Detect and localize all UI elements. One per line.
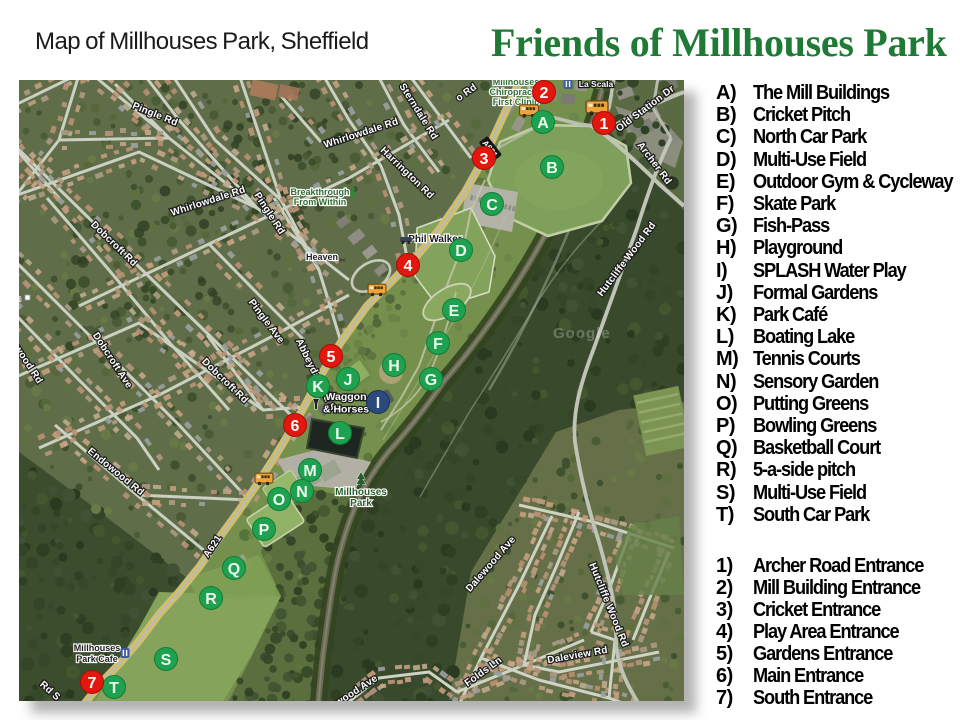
svg-text:R: R	[205, 591, 217, 608]
svg-text:wood Rd: wood Rd	[19, 343, 45, 386]
svg-text:Park Cafe: Park Cafe	[76, 654, 118, 664]
svg-text:Folds Ln: Folds Ln	[463, 655, 504, 689]
svg-text:M: M	[303, 463, 316, 480]
svg-text:I: I	[376, 395, 380, 412]
svg-text:C: C	[486, 197, 498, 214]
svg-text:La Scala: La Scala	[579, 80, 614, 89]
svg-text:Millhouses: Millhouses	[335, 487, 387, 498]
svg-text:Hutcliffe Wood Rd: Hutcliffe Wood Rd	[596, 220, 659, 298]
svg-text:Dalewood Ave: Dalewood Ave	[464, 534, 518, 594]
svg-text:F: F	[433, 336, 443, 353]
svg-text:Millhouses: Millhouses	[493, 80, 540, 87]
svg-text:G: G	[425, 372, 437, 389]
svg-text:Dobcroft Rd: Dobcroft Rd	[199, 356, 250, 406]
svg-text:Google: Google	[553, 325, 611, 342]
svg-text:4: 4	[404, 258, 413, 275]
svg-text:o Rd: o Rd	[454, 82, 479, 104]
svg-text:A: A	[537, 115, 549, 132]
svg-text:7: 7	[88, 675, 97, 692]
svg-text:Breakthrough: Breakthrough	[290, 187, 349, 197]
svg-text:O: O	[273, 492, 285, 509]
svg-text:Heaven: Heaven	[306, 252, 338, 262]
svg-text:Daleview Rd: Daleview Rd	[547, 645, 609, 666]
svg-text:5: 5	[327, 349, 336, 366]
svg-text:B: B	[546, 160, 558, 177]
svg-text:K: K	[312, 379, 324, 396]
svg-text:6: 6	[291, 418, 300, 435]
svg-text:& Horses: & Horses	[323, 404, 369, 416]
svg-text:Sterndale Rd: Sterndale Rd	[396, 82, 439, 142]
svg-text:J: J	[344, 372, 353, 389]
svg-text:Park: Park	[350, 498, 372, 509]
svg-text:Old Station Dr: Old Station Dr	[614, 84, 677, 135]
svg-text:Pingle Rd: Pingle Rd	[251, 191, 286, 237]
svg-text:Pingle Ave: Pingle Ave	[246, 297, 286, 346]
svg-text:Hutcliffe Wood Rd: Hutcliffe Wood Rd	[586, 561, 630, 648]
svg-text:Millhouses: Millhouses	[74, 643, 121, 653]
svg-text:P: P	[259, 522, 270, 539]
svg-text:Q: Q	[228, 561, 240, 578]
svg-text:1: 1	[600, 116, 609, 133]
svg-text:Dobcroft Ave: Dobcroft Ave	[90, 331, 134, 391]
svg-text:T: T	[109, 680, 119, 697]
svg-text:3: 3	[480, 151, 489, 168]
svg-text:n: n	[19, 296, 21, 303]
svg-text:2: 2	[540, 85, 549, 102]
svg-text:Whirlowdale Rd: Whirlowdale Rd	[170, 184, 247, 219]
svg-text:N: N	[296, 484, 308, 501]
svg-text:D: D	[455, 243, 467, 260]
svg-text:H: H	[388, 358, 400, 375]
svg-text:S: S	[161, 652, 172, 669]
svg-text:Dobcroft Rd: Dobcroft Rd	[88, 219, 139, 269]
svg-text:E: E	[449, 303, 460, 320]
svg-text:Pingle Rd: Pingle Rd	[131, 101, 180, 129]
svg-text:From Within: From Within	[294, 197, 346, 207]
svg-text:Archer Rd: Archer Rd	[635, 140, 674, 187]
svg-text:Waggon: Waggon	[325, 391, 366, 403]
svg-text:Whirlowdale Rd: Whirlowdale Rd	[323, 116, 400, 151]
svg-text:L: L	[335, 426, 345, 443]
svg-text:Rd S: Rd S	[37, 679, 62, 701]
svg-text:Endowood Rd: Endowood Rd	[85, 446, 146, 498]
svg-text:✄: ✄	[339, 256, 346, 265]
svg-text:Harrington Rd: Harrington Rd	[378, 145, 436, 201]
svg-text:wood Ave: wood Ave	[333, 673, 380, 701]
svg-text:A621: A621	[201, 533, 224, 560]
